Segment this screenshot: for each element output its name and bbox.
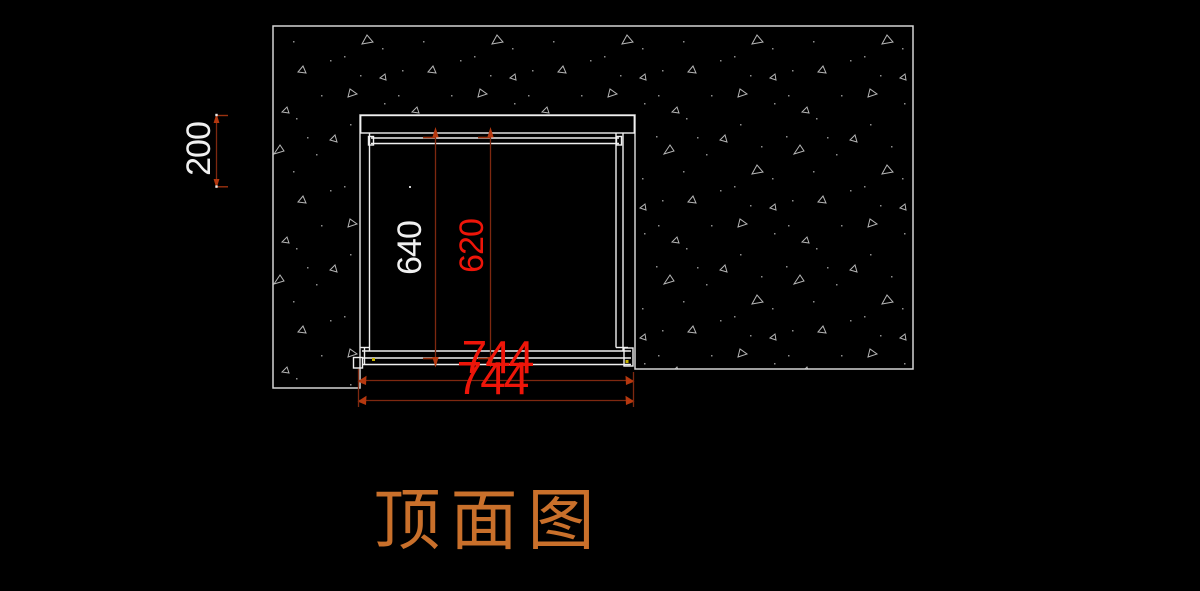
dim-200-label: 200 (182, 122, 216, 176)
dim-620-label: 620 (455, 219, 489, 273)
cabinet-top-rail (361, 116, 635, 134)
dim-640-label: 640 (393, 221, 427, 275)
dim-744-lower-label: 744 (457, 355, 528, 401)
cad-viewport: 200 640 620 744 744 顶面图 (0, 0, 1200, 591)
drawing-title: 顶面图 (374, 488, 605, 555)
